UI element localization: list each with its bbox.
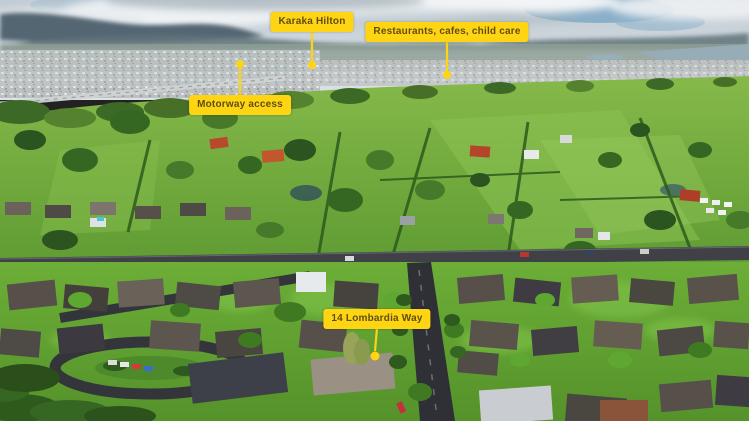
callout-motorway-access: Motorway access xyxy=(189,95,291,115)
aerial-photo: Karaka Hilton Restaurants, cafes, child … xyxy=(0,0,749,421)
callout-karaka-hilton: Karaka Hilton xyxy=(270,12,353,32)
callout-restaurants: Restaurants, cafes, child care xyxy=(365,22,528,42)
aerial-photo-background xyxy=(0,0,749,421)
callout-property: 14 Lombardia Way xyxy=(323,309,430,329)
